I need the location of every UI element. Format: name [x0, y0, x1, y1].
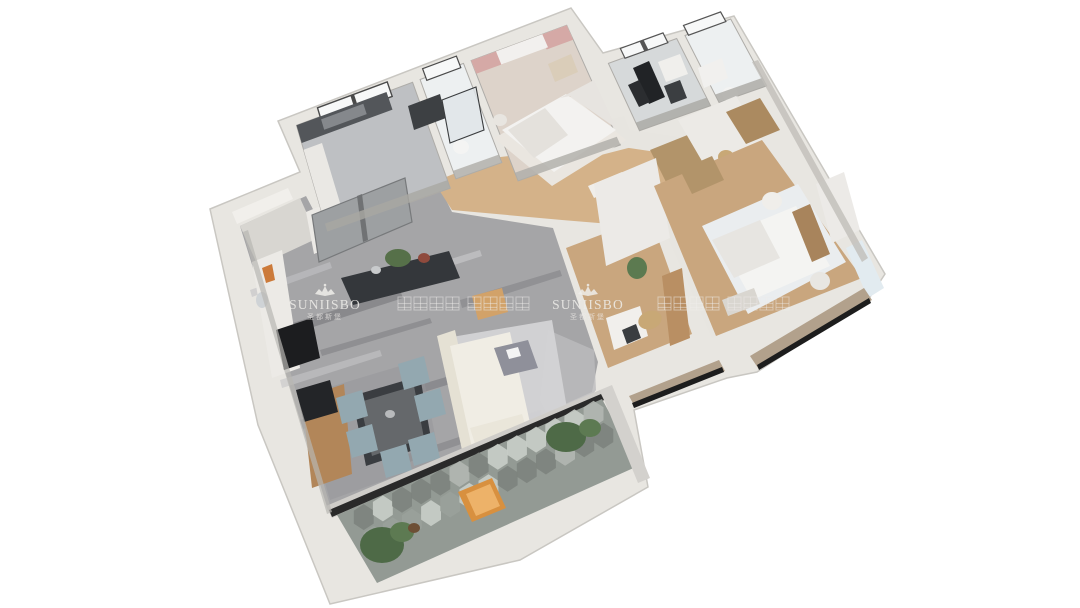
svg-text:SUNIISBO: SUNIISBO — [552, 297, 624, 312]
svg-text:SUNIISBO: SUNIISBO — [289, 297, 361, 312]
svg-text:圣都斯堡: 圣都斯堡 — [570, 312, 606, 321]
svg-text:圣都斯堡: 圣都斯堡 — [307, 312, 343, 321]
